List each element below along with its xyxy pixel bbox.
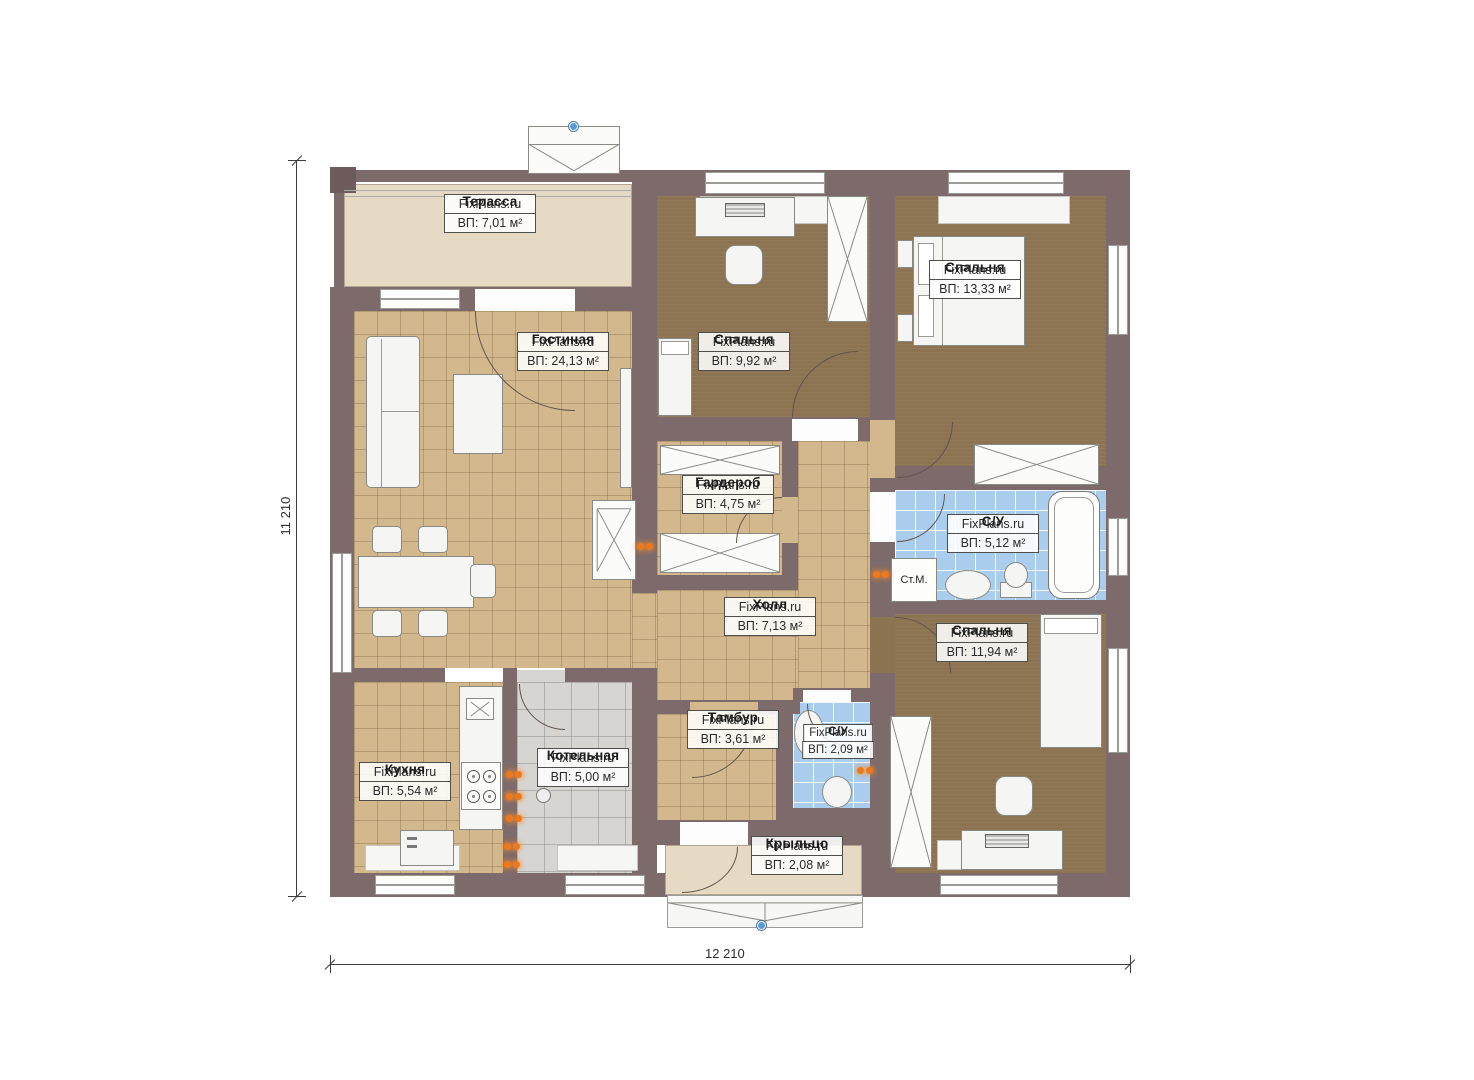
room-area: ВП: 3,61 м² [687,729,779,749]
room-label-wardrobe: Гардероб FixPlans.ru ВП: 4,75 м² [682,475,774,514]
floor-plan: Ст.М. [0,0,1474,1080]
dining-chair [418,610,448,637]
dimension-line-vertical [296,160,297,897]
dimension-width-label: 12 210 [705,946,745,961]
wall-bathroom1-bottom [870,600,1130,614]
desk-monitor [985,834,1029,848]
closet [890,716,932,868]
nightstand [897,240,913,268]
room-label-terrace: Терасса FixPlans.ru ВП: 7,01 м² [444,194,536,233]
kitchen-sink [466,698,494,720]
dining-table [358,556,474,608]
socket-icon [503,860,520,869]
closet [974,444,1099,485]
room-name: Терасса [463,194,518,209]
room-name: Крыльцо [766,836,829,851]
room-name: Гардероб [695,475,760,490]
socket-icon [856,766,873,775]
room-label-bedroom3: Спальня FixPlans.ru ВП: 11,94 м² [936,623,1028,662]
room-area: ВП: 2,08 м² [751,855,843,875]
door-opening-porch [680,822,748,845]
door-opening-bathroom2 [803,690,851,702]
bed-single [1040,614,1102,748]
room-name: Спальня [945,260,1005,275]
window-bottom-boiler [565,875,645,895]
toilet-bowl [822,776,852,808]
dining-chair [372,526,402,553]
hall-living-opening [632,593,657,668]
porch-marker [757,921,766,930]
dimension-height-label: 11 210 [278,497,293,536]
door-opening-boiler [517,670,565,682]
room-area: ВП: 4,75 м² [682,494,774,514]
door-opening-bedroom2 [870,420,895,478]
room-area: ВП: 5,12 м² [947,533,1039,553]
desk-monitor [725,203,765,217]
room-name: Спальня [714,332,774,347]
door-opening-wardrobe [782,497,798,543]
socket-icon [872,570,889,579]
room-label-bathroom1: С/У FixPlans.ru ВП: 5,12 м² [947,514,1039,553]
window-right-bathroom1 [1108,518,1128,576]
floor-drain [536,788,551,803]
room-area: ВП: 13,33 м² [929,279,1021,299]
room-label-hall: Холл FixPlans.ru ВП: 7,13 м² [724,597,816,636]
door-opening-terrace [475,289,575,311]
room-label-living: Гостиная FixPlans.ru ВП: 24,13 м² [517,332,609,371]
wall-mid-b [870,478,895,492]
hall-corridor-floor [798,441,870,700]
wardrobe-shelf [660,445,780,475]
room-area: ВП: 11,94 м² [936,642,1028,662]
window-bottom-bedroom3 [940,875,1058,895]
room-area: ВП: 7,01 м² [444,213,536,233]
chimney-marker [569,122,578,131]
room-label-bedroom1: Спальня FixPlans.ru ВП: 9,92 м² [698,332,790,371]
door-opening-bedroom1 [792,419,858,441]
window-top-bedroom1 [705,172,825,194]
room-area: ВП: 9,92 м² [698,351,790,371]
desk-chair [995,776,1033,816]
sofa [366,336,420,488]
closet [827,196,868,322]
bathtub [1048,491,1100,599]
door-opening-bedroom3 [870,617,895,673]
tv-cabinet [620,368,632,488]
window-left-living [332,553,352,673]
room-name: Холл [753,597,788,612]
socket-icon [505,792,522,801]
wall-wardrobe-bottom [640,575,798,590]
room-name: С/У [982,514,1005,529]
room-name: Тамбур [708,710,758,725]
room-label-kitchen: Кухня FixPlans.ru ВП: 5,54 м² [359,762,451,801]
coffee-table [453,374,503,454]
dining-chair [418,526,448,553]
fireplace [592,500,636,580]
room-name: Гостиная [532,332,595,347]
washing-machine-label: Ст.М. [900,574,927,586]
room-label-vestibule: Тамбур FixPlans.ru ВП: 3,61 м² [687,710,779,749]
sill-bedroom2 [938,196,1070,224]
room-label-bathroom2: С/У FixPlans.ru ВП: 2,09 м² [802,724,874,759]
room-label-bedroom2: Спальня FixPlans.ru ВП: 13,33 м² [929,260,1021,299]
room-label-boiler: Котельная FixPlans.ru ВП: 5,00 м² [537,748,629,787]
nightstand [897,314,913,342]
room-area: ВП: 24,13 м² [517,351,609,371]
dining-chair [470,564,496,598]
window-top-bedroom2 [948,172,1064,194]
wall-bathroom2-bottom [793,808,870,822]
room-label-porch: Крыльцо FixPlans.ru ВП: 2,08 м² [751,836,843,875]
bed-single [658,338,692,416]
room-name: Кухня [385,762,425,777]
terrace-rail-line1 [344,190,632,191]
dining-chair [372,610,402,637]
room-area: ВП: 5,00 м² [537,767,629,787]
room-area: ВП: 5,54 м² [359,781,451,801]
desk-chair [725,245,763,285]
room-area: ВП: 2,09 м² [802,741,874,759]
wall-column-lower [632,668,657,873]
wall-mid-a [870,170,895,420]
stove [461,762,501,810]
sill-boiler [557,845,638,871]
room-name: С/У [828,724,848,738]
room-name: Котельная [547,748,619,763]
fridge [400,830,454,866]
socket-icon [636,542,653,551]
socket-icon [505,770,522,779]
dimension-line-horizontal [330,964,1130,965]
door-opening-bathroom1 [870,492,895,542]
socket-icon [505,814,522,823]
washing-machine: Ст.М. [891,558,937,602]
room-area: ВП: 7,13 м² [724,616,816,636]
toilet-bowl [1004,562,1028,588]
sink [945,570,991,600]
socket-icon [503,842,520,851]
room-name: Спальня [952,623,1012,638]
window-right-bedroom3 [1108,648,1128,753]
chimney [528,126,620,174]
window-terrace-living [380,289,460,309]
window-right-bedroom2 [1108,245,1128,335]
window-bottom-kitchen [375,875,455,895]
wall-boiler-top [565,668,632,682]
